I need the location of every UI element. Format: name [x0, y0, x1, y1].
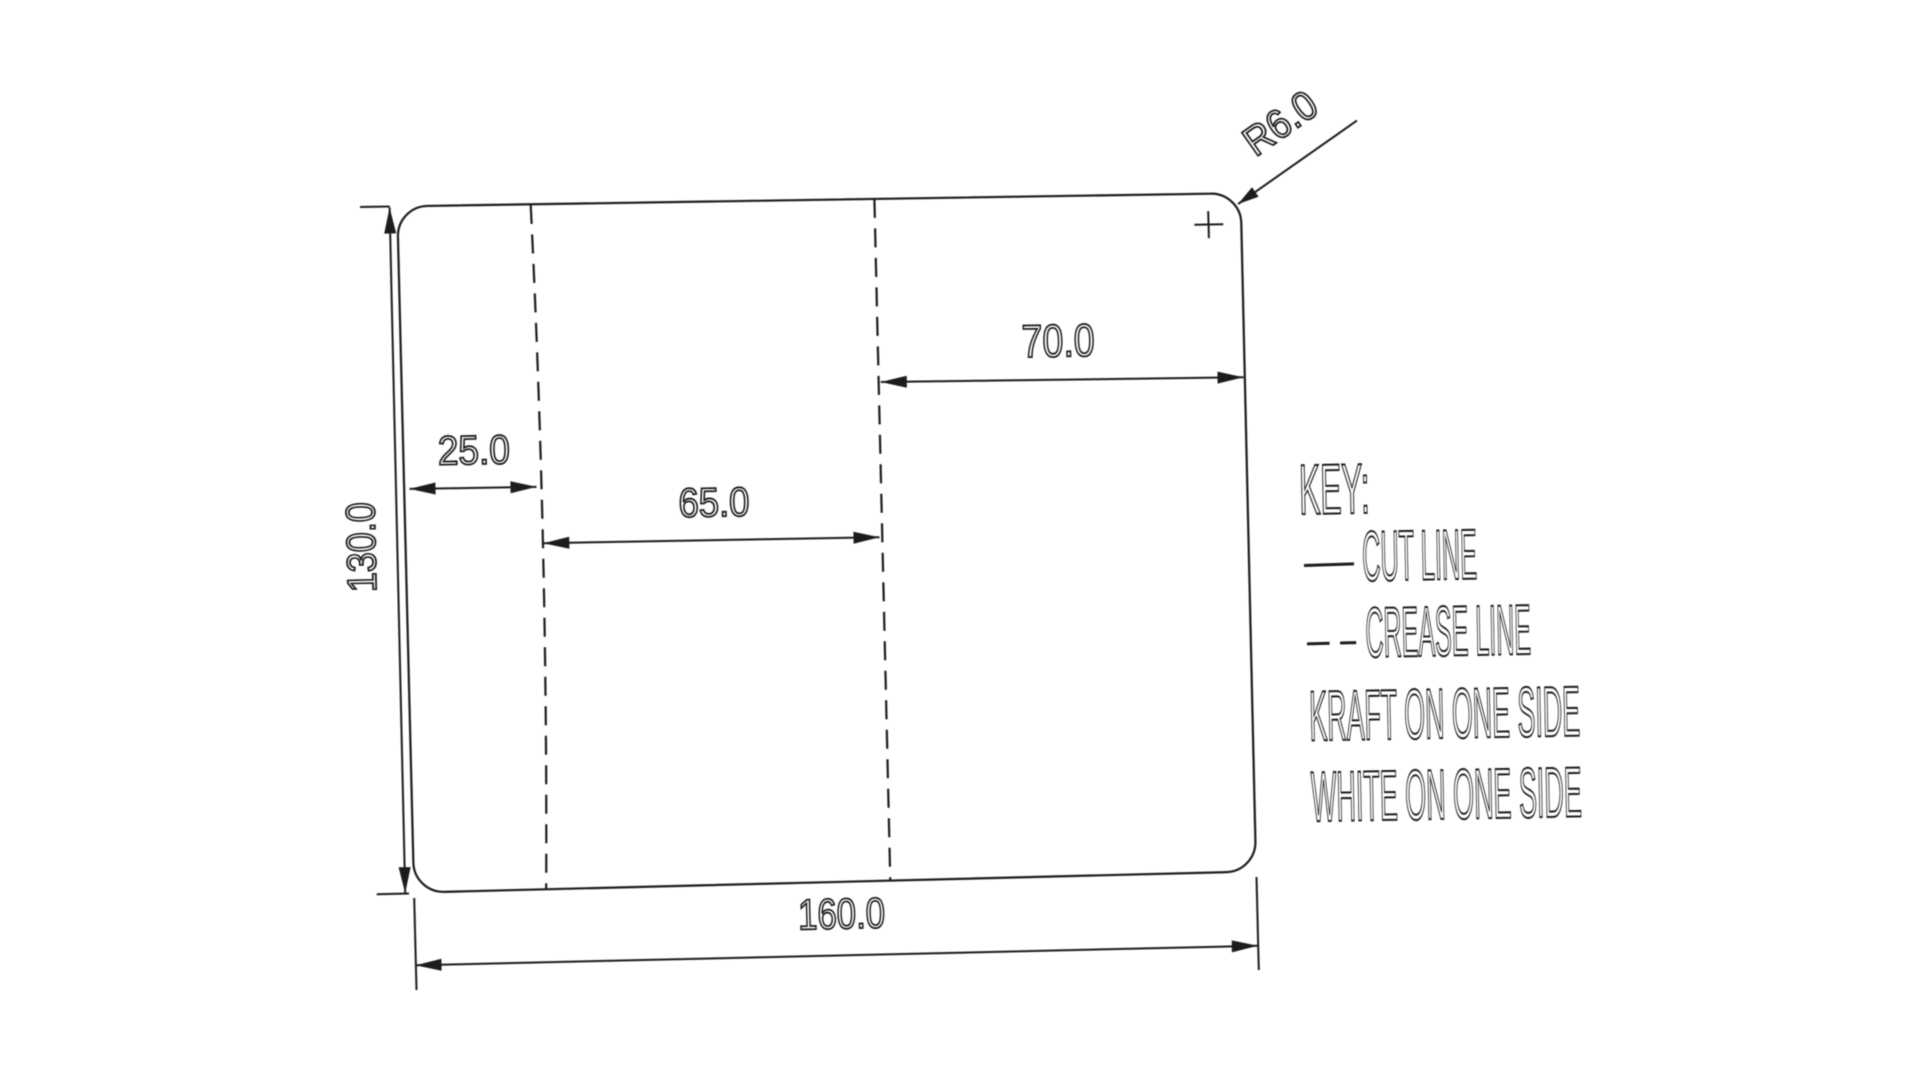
svg-text:65.0: 65.0 — [678, 479, 750, 526]
svg-text:WHITE ON ONE SIDE: WHITE ON ONE SIDE — [1310, 753, 1582, 837]
svg-text:CREASE LINE: CREASE LINE — [1365, 591, 1532, 673]
svg-text:130.0: 130.0 — [337, 502, 385, 593]
svg-text:25.0: 25.0 — [437, 426, 510, 473]
svg-text:160.0: 160.0 — [798, 890, 886, 940]
svg-text:CUT LINE: CUT LINE — [1361, 516, 1477, 597]
svg-text:KEY:: KEY: — [1298, 450, 1370, 530]
svg-text:KRAFT ON ONE SIDE: KRAFT ON ONE SIDE — [1309, 673, 1581, 757]
svg-text:70.0: 70.0 — [1021, 314, 1095, 367]
